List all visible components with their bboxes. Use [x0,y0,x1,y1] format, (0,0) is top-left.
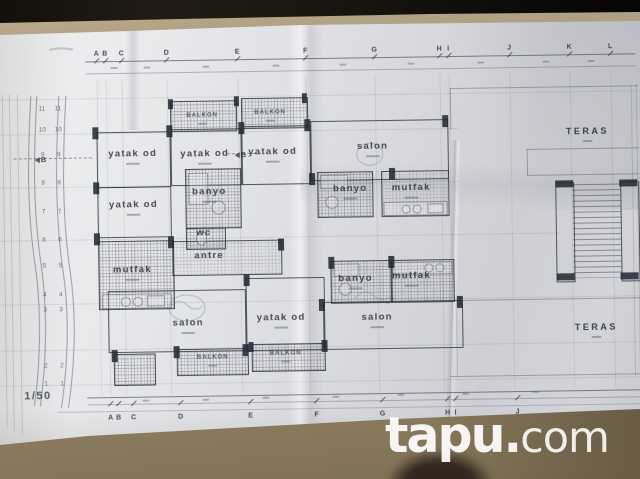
balcony-label: BALKON [270,350,302,356]
area-text-smudge [370,326,384,328]
grid-row-number: 11 [39,106,46,113]
grid-letter-top: J [507,45,511,52]
watermark-bold-text: tapu. [385,411,520,460]
grid-letter-bottom: B [116,414,121,421]
floor-plan-drawing: yatak od yatak od yatak od yatak od bany… [0,0,640,479]
wall-column [309,173,315,185]
area-text-smudge [208,365,217,367]
section-marker-b: B [235,150,247,159]
area-text-smudge [126,279,140,281]
watermark-light-text: com [520,417,609,460]
dimension-number-smudge [202,66,209,68]
wall-column [278,239,284,251]
wall-column [94,233,100,245]
wall-column [321,340,327,352]
balcony-label: BALKON [186,113,218,119]
room-label-living: salon [172,317,203,328]
wall-column [243,274,249,286]
room-label-kitchen: mutfak [392,270,431,282]
wall-column [388,256,394,268]
dimension-number-smudge [477,62,484,64]
wall-column [302,93,307,103]
wall-column [319,299,325,311]
grid-row-number: 3 [59,306,63,313]
grid-row-number: 4 [43,292,47,299]
area-text-smudge [343,197,357,199]
dimension-number-smudge [397,394,404,396]
room-label-living: salon [357,140,388,151]
room-label-bathroom: banyo [333,183,368,195]
grid-row-number: 5 [58,262,62,269]
grid-letter-top: L [608,43,612,50]
area-text-smudge [281,360,290,362]
area-text-smudge [198,123,207,125]
dimension-number-smudge [143,66,150,68]
area-text-smudge [591,336,601,338]
section-arrow-icon [35,157,40,163]
grid-row-number: 5 [42,263,46,270]
grid-row-number: 2 [60,362,64,369]
grid-row-number: 6 [58,236,62,243]
grid-row-number: 11 [55,105,62,112]
area-text-smudge [366,155,380,157]
grid-letter-bottom: F [314,412,318,419]
grid-row-number: 10 [55,126,62,133]
wall-column [234,96,239,106]
dimension-number-smudge [587,60,594,62]
terrace-label: TERAS [566,126,609,137]
grid-letter-top: E [235,49,240,56]
grid-letter-top: I [447,46,449,53]
wall-column [92,127,98,139]
grid-row-number: 8 [41,180,45,187]
grid-row-number: 7 [42,209,46,216]
wall-column [555,180,573,187]
grid-letter-top: H [437,46,442,53]
grid-row-number: 6 [42,237,46,244]
wall-column [174,346,180,358]
grid-row-number: 1 [44,381,48,388]
room-label-kitchen: mutfak [392,182,431,194]
room-label-hall: antre [194,250,224,261]
room-label-bedroom: yatak od [108,148,157,160]
grid-letter-bottom: E [248,413,253,420]
wall-column [304,119,310,131]
room-label-kitchen: mutfak [113,264,152,276]
dimension-number-smudge [202,399,209,401]
grid-row-number: 1 [60,380,64,387]
grid-letter-top: A [94,51,99,58]
area-text-smudge [127,214,141,216]
grid-row-number: 3 [43,307,47,314]
area-text-smudge [202,201,216,203]
terrace-label: TERAS [575,322,618,333]
wall-column [249,342,254,352]
grid-letter-bottom: D [178,414,183,421]
dimension-number-smudge [142,400,149,402]
dimension-number-smudge [272,65,279,67]
wall-column [238,122,244,134]
area-text-smudge [405,285,419,287]
grid-letter-top: F [303,48,307,55]
area-text-smudge [198,163,212,165]
area-text-smudge [126,163,140,165]
room-label-bedroom: yatak od [257,312,306,324]
area-text-smudge [404,197,418,199]
grid-letter-top: C [119,50,124,57]
dimension-number-smudge [532,391,539,393]
room-label-wc: wc [196,227,211,238]
dimension-number-smudge [332,396,339,398]
grid-row-number: 8 [57,179,61,186]
dimension-number-smudge [407,63,414,65]
area-text-smudge [266,161,280,163]
wall-column [168,99,173,109]
wall-column [457,296,463,308]
floor-plan-photo: yatak od yatak od yatak od yatak od bany… [0,0,640,479]
grid-row-number: 10 [39,127,46,134]
wall-column [328,257,334,269]
dimension-number-smudge [542,61,549,63]
area-text-smudge [583,140,593,142]
grid-row-number: 9 [57,151,61,158]
balcony-label: BALKON [197,354,229,360]
grid-row-number: 2 [44,363,48,370]
grid-row-number: 9 [41,152,45,159]
wall-column [442,115,448,127]
grid-letter-top: B [102,51,107,58]
room-label-bedroom: yatak od [248,146,297,158]
dimension-number-smudge [110,67,117,69]
grid-row-number: 4 [59,291,63,298]
room-label-bedroom: yatak od [109,199,158,211]
dimension-number-smudge [339,64,346,66]
grid-row-number: 7 [58,208,62,215]
wall-column [621,272,639,279]
wall-column [166,125,172,137]
area-text-smudge [349,287,363,289]
balcony-label: BALKON [254,109,286,115]
tapu-watermark: tapu.com [385,411,609,460]
wall-column [93,182,99,194]
wall-column [557,273,575,280]
room-label-bedroom: yatak od [180,148,229,160]
wall-column [112,350,118,362]
dimension-number-smudge [262,397,269,399]
wall-column [168,236,174,248]
grid-letter-bottom: A [108,415,113,422]
wall-column [619,179,637,186]
room-label-bathroom: banyo [338,273,373,285]
room-label-bathroom: banyo [192,186,227,198]
wall-column [389,168,395,180]
grid-letter-bottom: C [131,414,136,421]
scale-label: 1/50 [24,390,52,402]
dimension-number-smudge [462,393,469,395]
area-text-smudge [266,120,275,122]
area-text-smudge [274,326,288,328]
area-text-smudge [181,332,195,334]
